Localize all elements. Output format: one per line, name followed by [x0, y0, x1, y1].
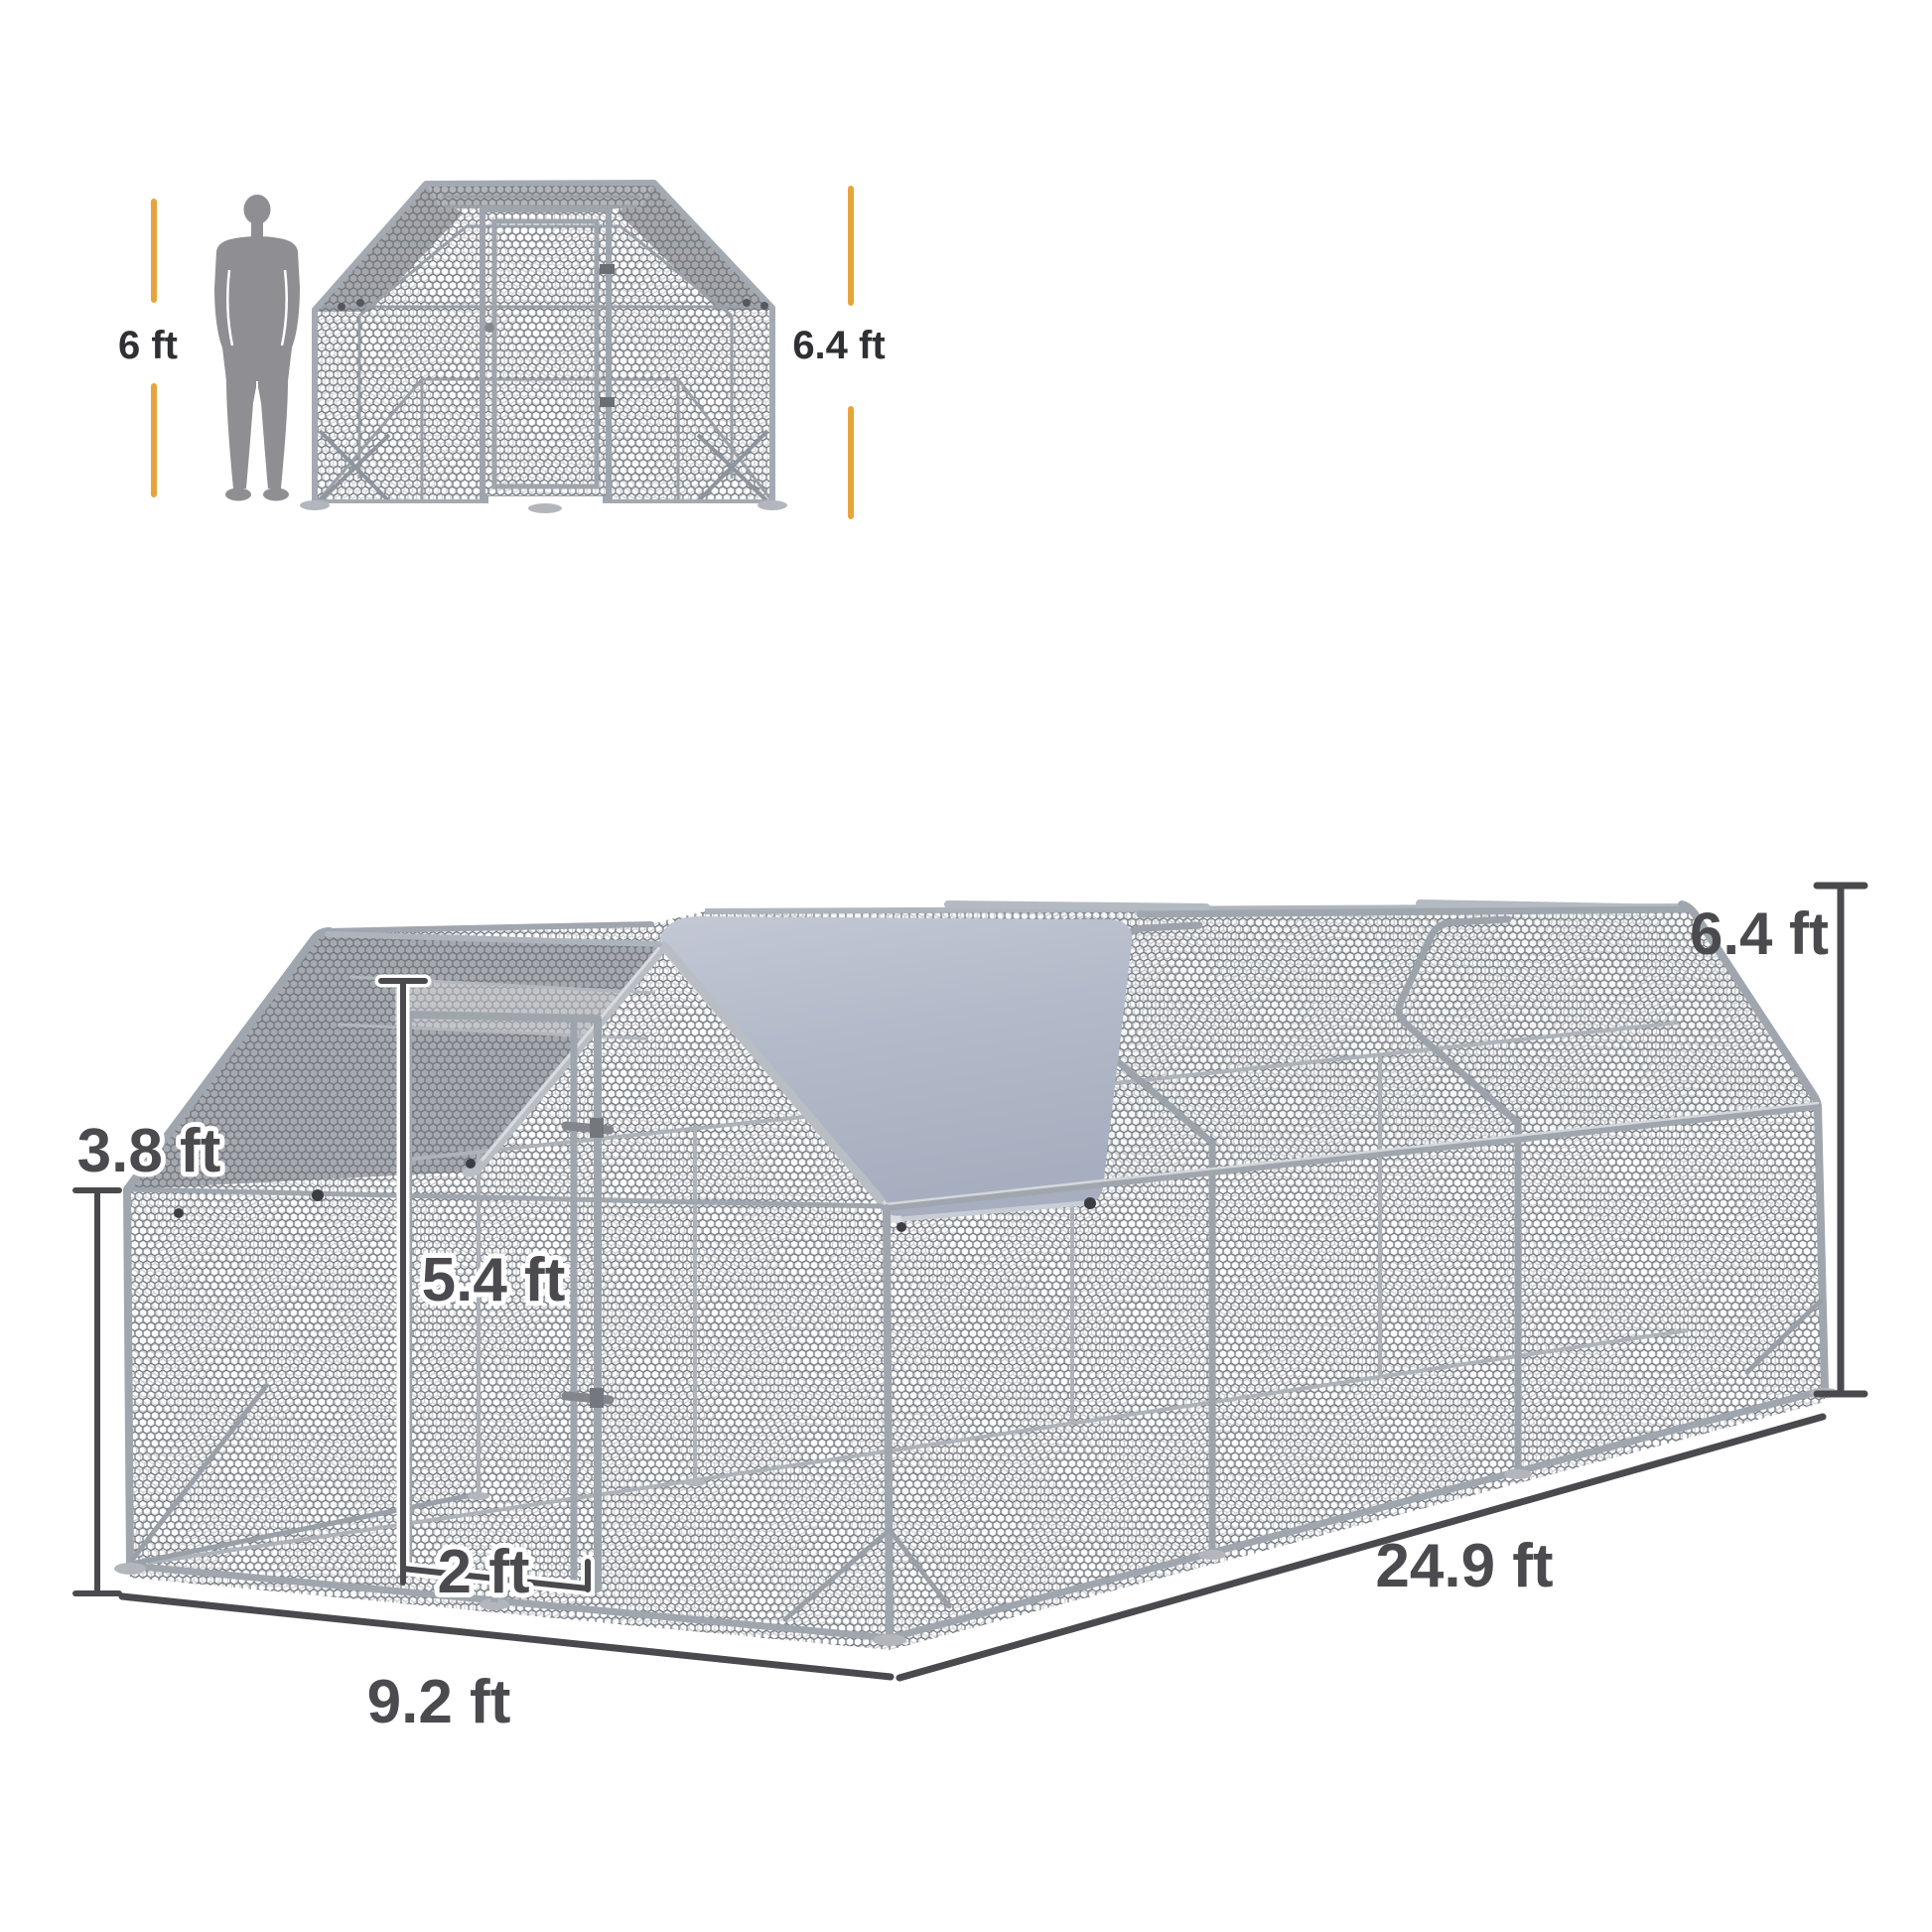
svg-text:5.4 ft: 5.4 ft	[422, 1246, 566, 1314]
svg-text:3.8 ft: 3.8 ft	[77, 1117, 221, 1185]
svg-text:6.4 ft: 6.4 ft	[792, 324, 885, 367]
svg-text:6 ft: 6 ft	[118, 324, 178, 367]
svg-text:2 ft: 2 ft	[438, 1538, 530, 1606]
svg-text:24.9 ft: 24.9 ft	[1375, 1532, 1553, 1600]
svg-text:6.4 ft: 6.4 ft	[1690, 900, 1829, 967]
svg-text:9.2 ft: 9.2 ft	[367, 1668, 511, 1736]
